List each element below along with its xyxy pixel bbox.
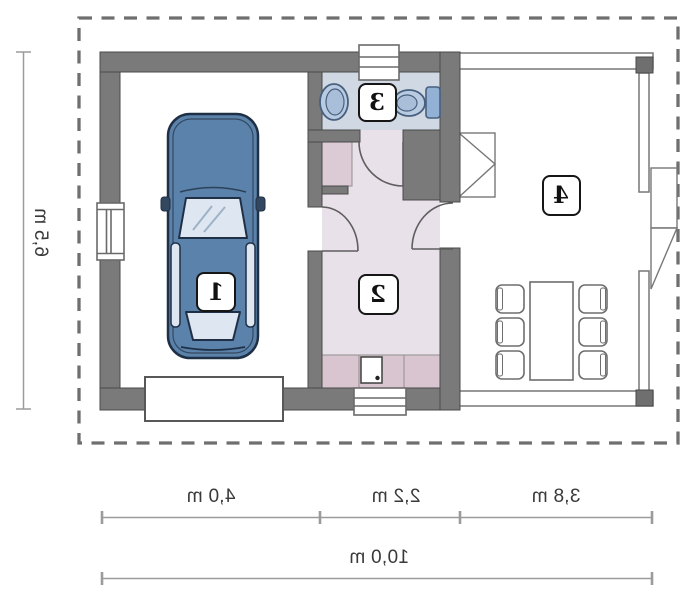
exterior-steps-left-icon: [459, 133, 495, 197]
toilet-icon: [393, 87, 440, 118]
appliance-knob: [375, 376, 379, 380]
terrace-post-bottom: [636, 390, 653, 406]
car-mirror-left: [161, 197, 170, 211]
wall-top: [100, 52, 460, 72]
dimension-label-height: 6,5 m: [29, 209, 51, 257]
car-rear-window: [186, 312, 240, 340]
room-badge-hallway: 2: [358, 274, 399, 315]
table-with-six-chairs-icon: [496, 282, 607, 380]
car-mirror-right: [256, 197, 265, 211]
dimension-label-terrace-width: 3,8 m: [516, 486, 596, 508]
car-top-view-icon: [161, 114, 265, 358]
garage-door-icon: [145, 377, 283, 421]
wall-closet-stub: [322, 186, 348, 194]
dimension-label-hall-width: 2,2 m: [356, 486, 436, 508]
room-number: 3: [369, 89, 385, 116]
chair-icon: [496, 285, 524, 313]
dimension-label-garage-width: 4,0 m: [171, 486, 251, 508]
terrace-right-rail-upper: [639, 73, 649, 192]
exterior-steps-right-icon: [651, 168, 677, 289]
floor-plan: 1 2 3 4 6,5 m 4,0 m 2,2 m 3,8 m 10,0 m: [0, 0, 700, 601]
car-windshield: [179, 198, 247, 238]
terrace-top-wall: [458, 53, 653, 69]
chair-icon: [496, 318, 524, 346]
wall-garage-hall-lower: [308, 251, 322, 388]
wall-left-lower: [100, 260, 120, 388]
room-number: 2: [370, 281, 386, 308]
room-badge-terrace: 4: [542, 175, 581, 216]
chair-icon: [496, 351, 524, 379]
washbasin-icon: [320, 84, 348, 120]
wall-left-upper: [100, 72, 120, 203]
car-side-window-left: [171, 243, 180, 327]
floor-plan-drawing: [0, 0, 700, 601]
car-side-window-right: [246, 243, 255, 327]
dimension-label-total-width: 10,0 m: [334, 547, 424, 569]
chair-icon: [579, 285, 607, 313]
terrace-post-top: [636, 57, 653, 73]
room-badge-garage: 1: [196, 272, 236, 312]
closet: [322, 140, 352, 186]
terrace-bottom-wall: [458, 391, 653, 406]
chair-icon: [579, 351, 607, 379]
chair-icon: [579, 318, 607, 346]
room-number: 1: [208, 279, 224, 306]
wall-right-lower: [440, 248, 460, 410]
room-number: 4: [553, 182, 569, 209]
wall-chunk: [403, 130, 440, 200]
room-badge-bathroom: 3: [358, 83, 397, 122]
window-icon: [359, 45, 399, 80]
entrance-door-icon: [354, 388, 406, 415]
dining-table: [530, 282, 573, 380]
wall-right-upper: [440, 52, 460, 202]
terrace-right-rail-lower: [639, 271, 649, 391]
window-icon: [97, 203, 124, 260]
wall-bathroom-bottom: [308, 130, 360, 142]
